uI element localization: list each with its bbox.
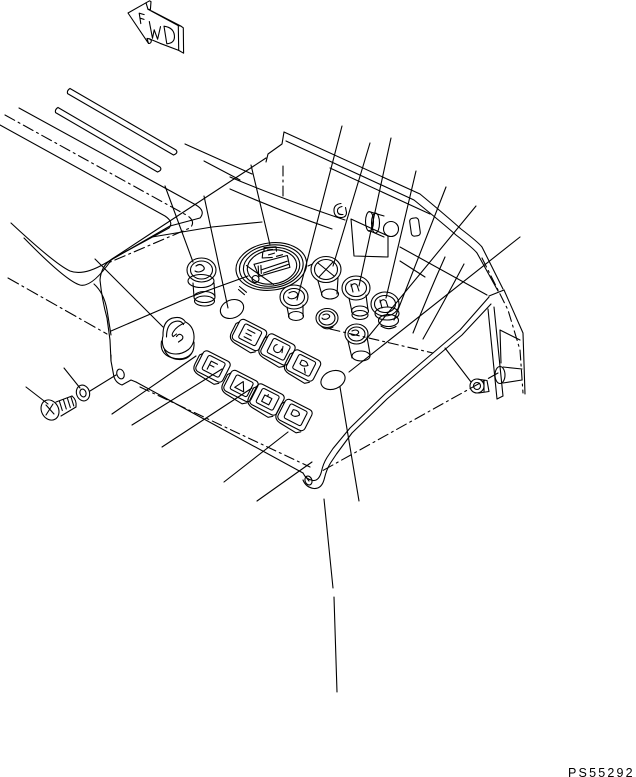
svg-text:PS55292: PS55292	[568, 766, 635, 777]
